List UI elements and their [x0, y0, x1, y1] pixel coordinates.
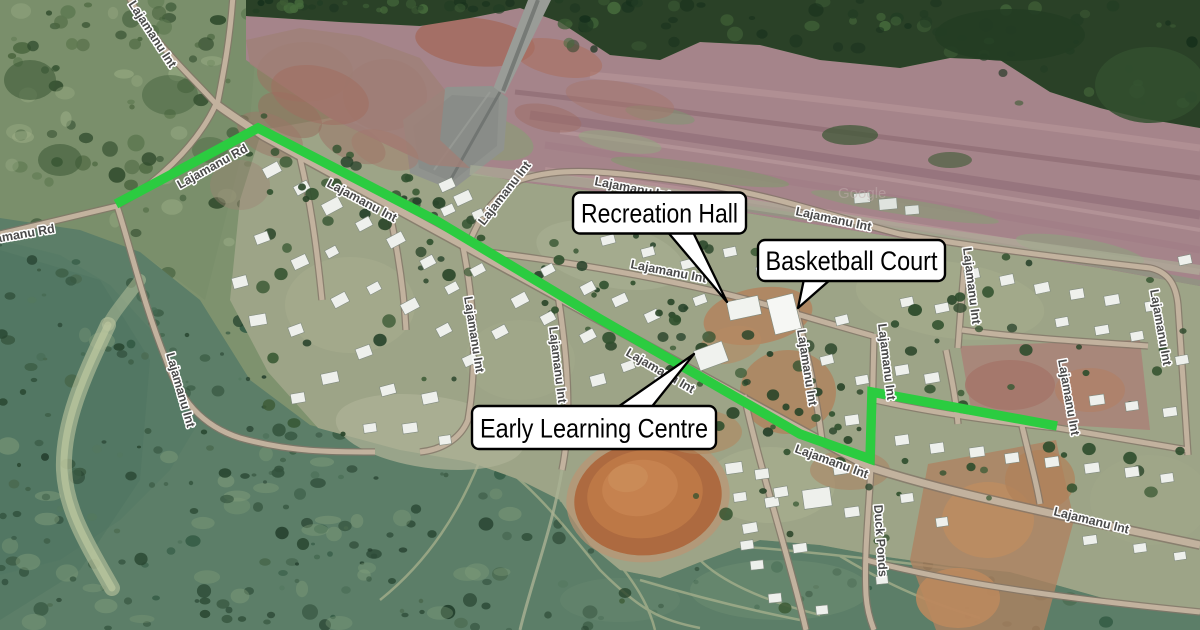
- svg-text:Early Learning Centre: Early Learning Centre: [480, 414, 708, 444]
- svg-text:Google: Google: [838, 185, 886, 202]
- svg-text:Recreation Hall: Recreation Hall: [581, 199, 738, 229]
- svg-text:Basketball Court: Basketball Court: [766, 246, 938, 276]
